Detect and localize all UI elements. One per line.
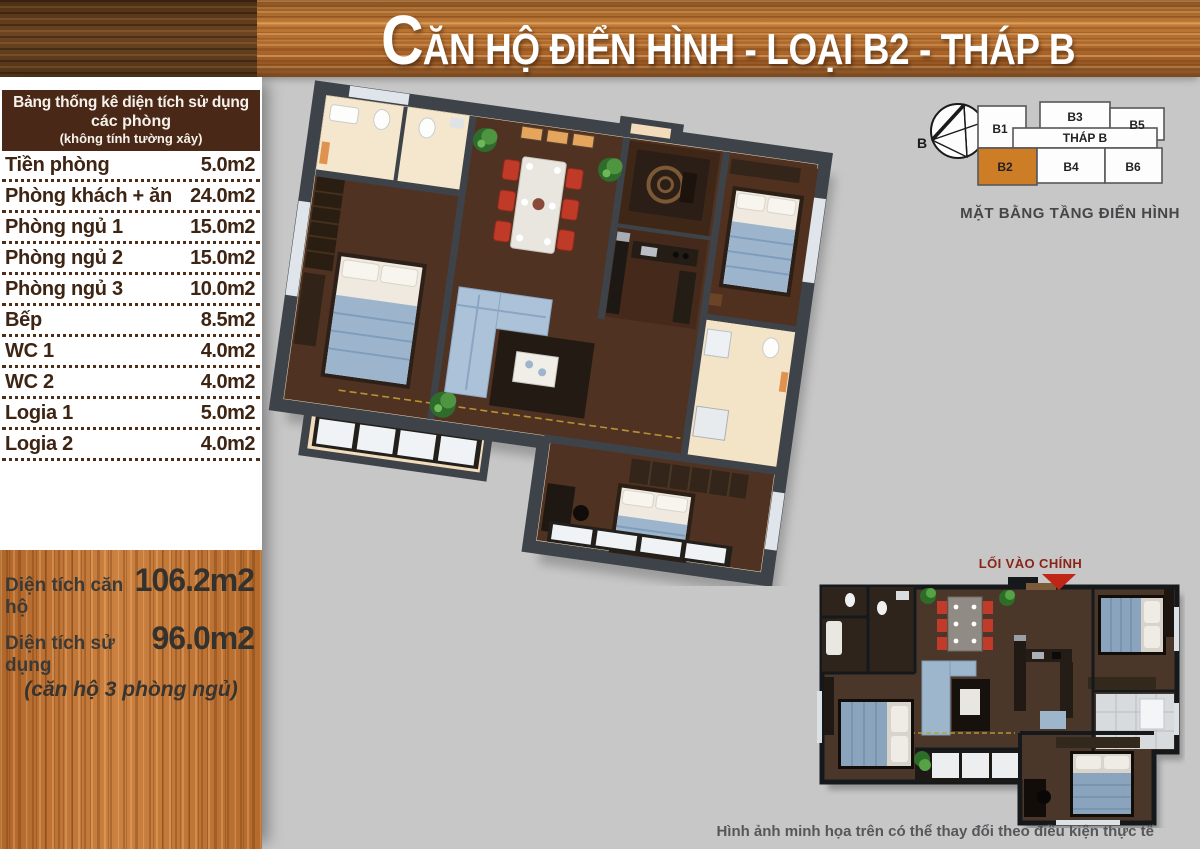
entrance-arrow-icon: [1042, 574, 1076, 590]
wall-picture: [572, 133, 594, 148]
table-row: Logia 15.0m2: [2, 399, 260, 430]
dining-chair: [556, 229, 575, 251]
room-area: 4.0m2: [201, 371, 255, 394]
table-row: Logia 24.0m2: [2, 430, 260, 461]
room-area: 5.0m2: [201, 154, 255, 177]
area-table-title-line3: (không tính tường xây): [4, 131, 258, 146]
unit-layout: B1 B3 B5 THÁP B B2 B4 B6: [978, 102, 1164, 185]
room-area: 24.0m2: [190, 185, 255, 208]
dining-chair: [502, 159, 521, 181]
washer: [704, 329, 731, 358]
unit-b5-label: B5: [1129, 118, 1145, 132]
unit-b4-label: B4: [1063, 160, 1079, 174]
dining-2d: [937, 597, 993, 651]
poster-page: CĂN HỘ ĐIỂN HÌNH - LOẠI B2 - THÁP B Bảng…: [0, 0, 1200, 849]
area-statistics-panel: Bảng thống kê diện tích sử dụng các phòn…: [0, 77, 262, 849]
room-area: 4.0m2: [201, 433, 255, 456]
room-label: Logia 1: [5, 402, 73, 425]
unit-b6-label: B6: [1125, 160, 1141, 174]
table-row: Phòng ngủ 310.0m2: [2, 275, 260, 306]
compass: B: [917, 104, 985, 158]
dining-chair: [497, 190, 516, 212]
dining-chair: [565, 168, 584, 190]
table-row: Phòng ngủ 215.0m2: [2, 244, 260, 275]
table-row: WC 14.0m2: [2, 337, 260, 368]
entry-rug: [628, 149, 710, 221]
area-table: Bảng thống kê diện tích sử dụng các phòn…: [2, 90, 260, 461]
area-table-header: Bảng thống kê diện tích sử dụng các phòn…: [2, 90, 260, 151]
room-label: Tiền phòng: [5, 154, 109, 177]
unit-b2-label: B2: [997, 160, 1013, 174]
room-label: Phòng ngủ 3: [5, 278, 123, 301]
room-area: 5.0m2: [201, 402, 255, 425]
diagram-caption: MẶT BẰNG TẦNG ĐIỂN HÌNH: [960, 204, 1180, 222]
entrance-hall: [617, 140, 721, 236]
room-area: 8.5m2: [201, 309, 255, 332]
unit-b3-label: B3: [1067, 110, 1083, 124]
unit-b1-label: B1: [992, 122, 1008, 136]
total-area-value: 106.2m2: [135, 562, 254, 599]
room-area: 15.0m2: [190, 216, 255, 239]
wall-picture: [521, 126, 543, 141]
room-area: 15.0m2: [190, 247, 255, 270]
tower-label: THÁP B: [1063, 130, 1108, 145]
floorplan-3d: [256, 66, 906, 586]
room-label: Bếp: [5, 309, 42, 332]
summary-usable-row: Diện tích sử dụng 96.0m2: [0, 620, 262, 677]
side-table-2d: [1040, 711, 1066, 729]
area-table-title-line2: các phòng: [4, 112, 258, 131]
floorplan-2d: [810, 573, 1185, 828]
room-label: Logia 2: [5, 433, 73, 456]
shower: [693, 406, 729, 440]
total-area-label: Diện tích căn hộ: [5, 575, 135, 619]
dining-chair: [561, 199, 580, 221]
kitchen: [604, 227, 709, 329]
main-entrance-label: LỐI VÀO CHÍNH: [948, 556, 1113, 571]
table-row: WC 24.0m2: [2, 368, 260, 399]
blanket: [723, 221, 795, 292]
room-label: Phòng ngủ 2: [5, 247, 123, 270]
tower-floor-diagram: B B1 B3 B5 THÁP B B2 B4 B6 MẶT BẰNG TẦNG…: [898, 86, 1200, 238]
banner-dark-wood-segment: [0, 0, 257, 77]
pillow: [736, 193, 766, 212]
room-label: Phòng khách + ăn: [5, 185, 172, 208]
dining-chair: [493, 220, 512, 242]
room-label: WC 1: [5, 340, 54, 363]
usable-area-label: Diện tích sử dụng: [5, 633, 151, 677]
table-row: Tiền phòng5.0m2: [2, 151, 260, 182]
table-row: Phòng khách + ăn24.0m2: [2, 182, 260, 213]
compass-north-label: B: [917, 135, 927, 151]
table-row: Phòng ngủ 115.0m2: [2, 213, 260, 244]
area-summary-wood-panel: Diện tích căn hộ 106.2m2 Diện tích sử dụ…: [0, 550, 262, 849]
bathrooms-2d: [822, 587, 915, 673]
room-area: 4.0m2: [201, 340, 255, 363]
usable-area-value: 96.0m2: [151, 620, 254, 657]
disclaimer-text: Hình ảnh minh họa trên có thể thay đổi t…: [716, 823, 1154, 840]
wall-picture: [546, 130, 568, 145]
bedroom-count-note: (căn hộ 3 phòng ngủ): [0, 678, 262, 702]
room-label: WC 2: [5, 371, 54, 394]
table-row: Bếp8.5m2: [2, 306, 260, 337]
summary-total-row: Diện tích căn hộ 106.2m2: [0, 562, 262, 619]
pillow: [767, 197, 797, 216]
room-area: 10.0m2: [190, 278, 255, 301]
room-label: Phòng ngủ 1: [5, 216, 123, 239]
balcony-2d: [914, 749, 1020, 782]
coffee-table: [513, 352, 559, 388]
area-table-title-line1: Bảng thống kê diện tích sử dụng: [4, 94, 258, 112]
